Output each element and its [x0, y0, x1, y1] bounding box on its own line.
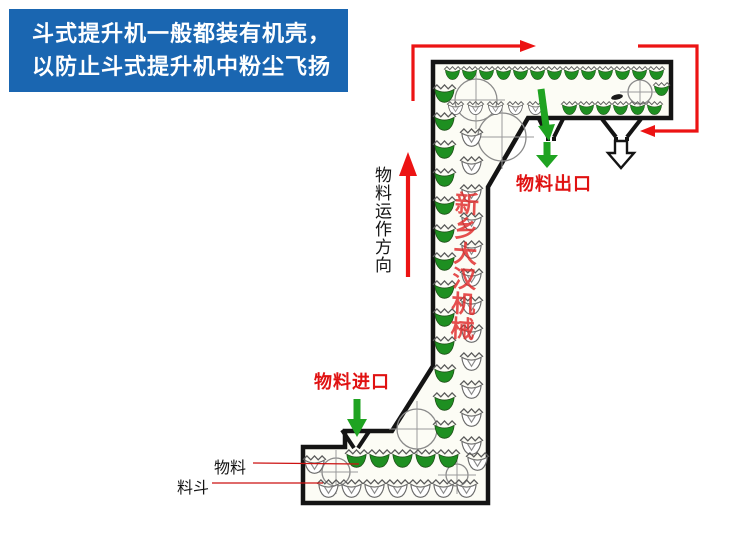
conveyor-housing-outline [303, 62, 671, 503]
hopper-label: 料斗 [177, 474, 209, 498]
secondary-outlet-arrow [608, 141, 634, 168]
info-box-line2: 以防止斗式提升机中粉尘飞扬 [32, 50, 348, 83]
info-box: 斗式提升机一般都装有机壳， 以防止斗式提升机中粉尘飞扬 [9, 9, 348, 92]
watermark-text: 新乡大汉机械 [441, 190, 482, 352]
outlet-label: 物料出口 [516, 170, 592, 196]
outlet-funnel-right [602, 119, 641, 141]
inlet-label: 物料进口 [314, 368, 390, 394]
info-box-line1: 斗式提升机一般都装有机壳， [32, 17, 348, 50]
flow-direction-label: 物料运作方向 [369, 166, 394, 291]
material-flow-up-arrow [399, 152, 417, 277]
page: 斗式提升机一般都装有机壳， 以防止斗式提升机中粉尘飞扬 物料运作方向 物料出口 … [0, 0, 753, 535]
material-label: 物料 [214, 454, 246, 478]
outlet-material-arrow [536, 142, 558, 168]
